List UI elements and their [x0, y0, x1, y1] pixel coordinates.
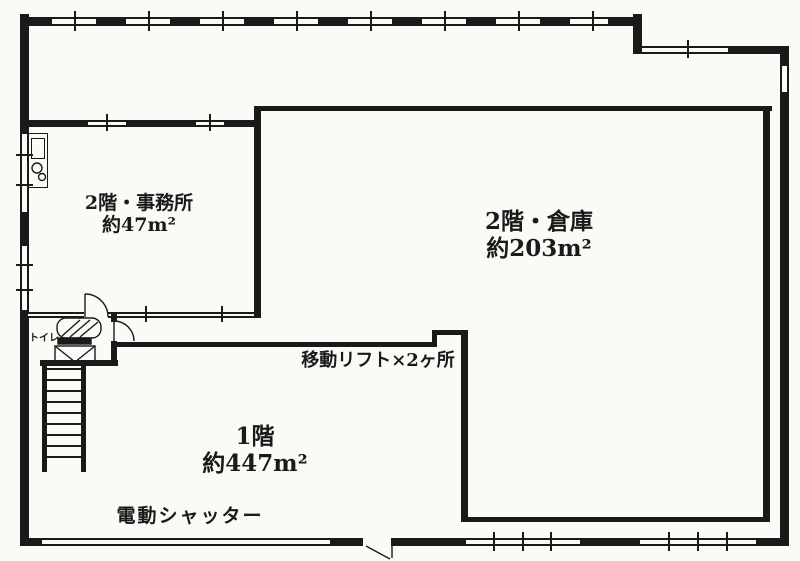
toilet-pan	[55, 346, 95, 362]
office-room-label: 2階・事務所 約47m²	[85, 192, 193, 237]
first-floor-label: 1階 約447m²	[202, 423, 307, 477]
shutter-annotation: 電動シャッター	[116, 505, 263, 527]
toilet-cistern	[58, 338, 91, 344]
door-swing-arc	[85, 294, 108, 317]
door-swing-arc	[114, 321, 134, 341]
office-area: 約47m²	[85, 214, 193, 236]
counter-hatching	[62, 320, 98, 337]
toilet-pan-detail	[55, 346, 95, 362]
kitchenette-burner-small	[39, 174, 46, 181]
first-floor-area: 約447m²	[202, 450, 307, 477]
warehouse-room-label: 2階・倉庫 約203m²	[485, 208, 593, 262]
office-name: 2階・事務所	[85, 192, 193, 214]
first-floor-name: 1階	[202, 423, 307, 450]
lift-annotation: 移動リフト×2ヶ所	[301, 350, 455, 371]
door-swing-line	[366, 546, 390, 559]
kitchenette-burner-large	[32, 163, 42, 173]
floor-plan: 2階・事務所 約47m² 2階・倉庫 約203m² 1階 約447m² 移動リフ…	[0, 0, 800, 561]
plan-details-overlay	[0, 0, 800, 561]
toilet-annotation: トイレ	[29, 333, 59, 345]
warehouse-name: 2階・倉庫	[485, 208, 593, 235]
warehouse-area: 約203m²	[485, 235, 593, 262]
